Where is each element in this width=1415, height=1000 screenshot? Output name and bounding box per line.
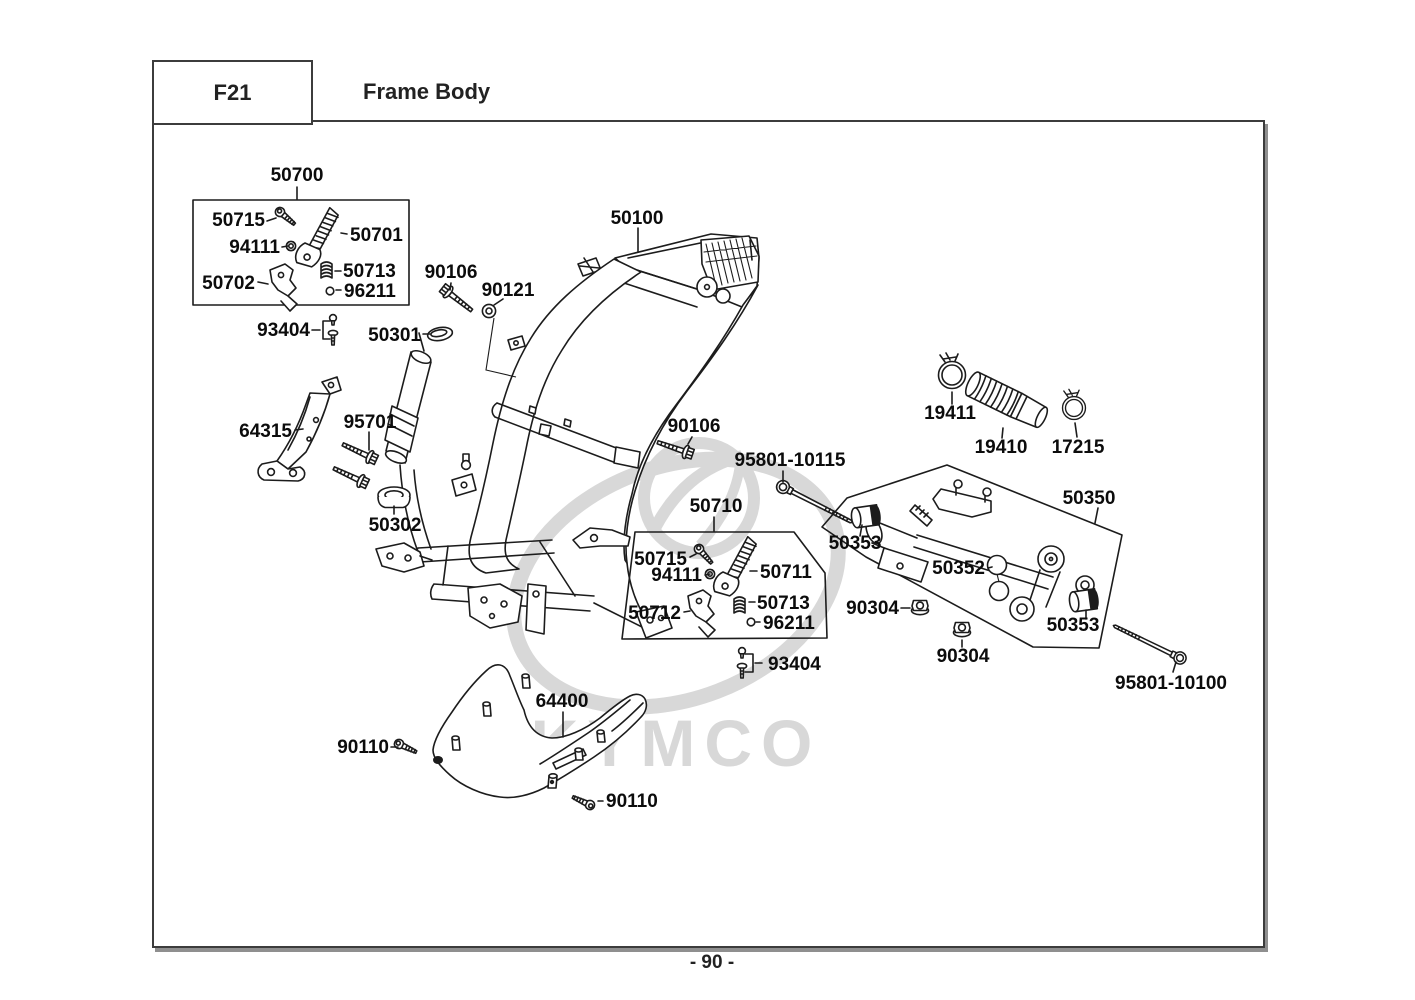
part-label-64400: 64400	[536, 691, 589, 712]
page-title: Frame Body	[363, 79, 490, 105]
part-label-19411: 19411	[924, 403, 976, 424]
part-label-94111: 94111	[651, 565, 702, 586]
part-label-90110: 90110	[606, 791, 658, 812]
screw-icon	[274, 206, 298, 228]
page-code-box: F21	[152, 60, 313, 125]
part-label-95801-10115: 95801-10115	[735, 450, 846, 471]
grommet-icon	[482, 304, 495, 317]
flange-nut-icon	[912, 601, 929, 615]
spring-icon	[321, 262, 332, 278]
part-label-50353: 50353	[1047, 615, 1100, 636]
part-label-50100: 50100	[611, 208, 664, 229]
part-label-90106: 90106	[425, 262, 478, 283]
part-label-50301: 50301	[368, 325, 421, 346]
hose-clamp-icon	[939, 353, 966, 389]
part-label-19410: 19410	[975, 437, 1028, 458]
washer-icon	[747, 618, 755, 626]
parts-diagram: KYMCO	[0, 0, 1415, 1000]
part-label-95801-10100: 95801-10100	[1115, 673, 1227, 694]
bracket-icon	[270, 264, 297, 311]
part-label-94111: 94111	[229, 237, 280, 258]
bushing-icon	[850, 504, 882, 528]
part-label-50702: 50702	[202, 273, 255, 294]
part-label-50352: 50352	[932, 558, 985, 579]
bolt-set-93404-left	[312, 315, 338, 345]
part-label-50715: 50715	[212, 210, 265, 231]
bushing-icon	[1068, 588, 1100, 612]
part-label-50350: 50350	[1063, 488, 1116, 509]
part-label-50713: 50713	[343, 261, 396, 282]
flange-bolt-icon	[438, 282, 476, 315]
part-label-90106: 90106	[668, 416, 721, 437]
part-label-50302: 50302	[369, 515, 422, 536]
flange-nut-icon	[954, 623, 971, 637]
part-label-93404: 93404	[768, 654, 821, 675]
screw-icon	[571, 793, 596, 811]
footrest-arm-icon	[292, 205, 345, 272]
part-label-90121: 90121	[482, 280, 535, 301]
long-bolt-icon	[1111, 620, 1188, 666]
part-label-96211: 96211	[344, 281, 396, 302]
washer-icon	[326, 287, 334, 295]
part-label-50712: 50712	[628, 603, 681, 624]
part-label-50353: 50353	[829, 533, 882, 554]
part-label-50710: 50710	[690, 496, 743, 517]
collar-icon	[988, 556, 1007, 575]
bracket-icon	[688, 590, 715, 637]
part-label-90304: 90304	[846, 598, 899, 619]
part-label-96211: 96211	[763, 613, 815, 634]
part-label-93404: 93404	[257, 320, 310, 341]
part-label-64315: 64315	[239, 421, 292, 442]
grommet-icon	[378, 487, 410, 508]
part-label-50701: 50701	[350, 225, 403, 246]
spring-icon	[734, 597, 745, 613]
page-code: F21	[214, 80, 252, 106]
air-duct-drawing	[963, 370, 1051, 431]
flange-bolt-icon	[331, 462, 370, 490]
part-label-50711: 50711	[760, 562, 812, 583]
collar-icon	[990, 582, 1009, 601]
part-label-50700: 50700	[271, 165, 324, 186]
flange-bolt-icon	[340, 438, 379, 466]
part-label-90304: 90304	[937, 646, 990, 667]
part-label-17215: 17215	[1052, 437, 1105, 458]
hose-clamp-icon	[1063, 389, 1086, 419]
part-label-50713: 50713	[757, 593, 810, 614]
page-number: - 90 -	[652, 952, 772, 974]
part-label-90110: 90110	[337, 737, 389, 758]
part-label-95701: 95701	[344, 412, 397, 433]
bolt-set-icon	[328, 315, 337, 345]
